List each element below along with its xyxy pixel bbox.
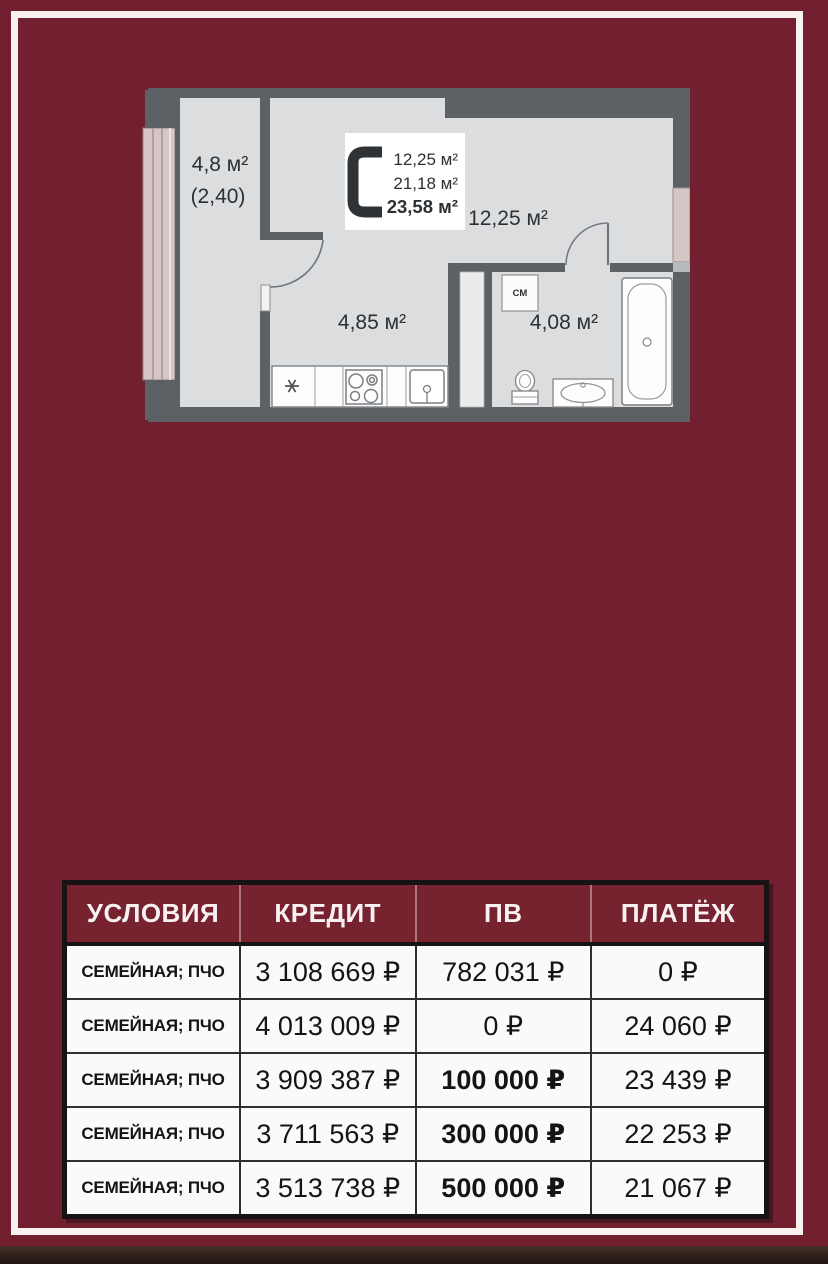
balcony-door-jamb xyxy=(261,285,270,311)
credit-cell: 4 013 009 ₽ xyxy=(240,999,416,1053)
credit-cell: 3 711 563 ₽ xyxy=(240,1107,416,1161)
conditions-cell: СЕМЕЙНАЯ; ПЧО xyxy=(65,944,241,999)
payment-cell: 0 ₽ xyxy=(591,944,767,999)
conditions-cell: СЕМЕЙНАЯ; ПЧО xyxy=(65,999,241,1053)
flyer-canvas: СМ 12,25 м² 21,18 м² 23,58 м² xyxy=(0,0,828,1264)
kitchen-area-label: 4,85 м² xyxy=(338,311,406,334)
kitchen-counter xyxy=(272,366,448,407)
bathroom-area-label: 4,08 м² xyxy=(530,311,598,334)
down-payment-cell: 0 ₽ xyxy=(416,999,592,1053)
payment-cell: 21 067 ₽ xyxy=(591,1161,767,1217)
legend-area-total: 23,58 м² xyxy=(387,196,458,217)
down-payment-cell: 300 000 ₽ xyxy=(416,1107,592,1161)
credit-cell: 3 513 738 ₽ xyxy=(240,1161,416,1217)
payment-cell: 22 253 ₽ xyxy=(591,1107,767,1161)
credit-cell: 3 909 387 ₽ xyxy=(240,1053,416,1107)
col-header-payment: ПЛАТЁЖ xyxy=(591,883,767,945)
payment-cell: 23 439 ₽ xyxy=(591,1053,767,1107)
legend-area-1: 12,25 м² xyxy=(393,150,458,169)
bathtub-icon xyxy=(622,278,672,405)
balcony-window xyxy=(143,128,175,380)
conditions-cell: СЕМЕЙНАЯ; ПЧО xyxy=(65,1107,241,1161)
washing-machine-label: СМ xyxy=(513,288,528,299)
payment-cell: 24 060 ₽ xyxy=(591,999,767,1053)
main-room-area-label: 12,25 м² xyxy=(468,207,548,230)
table-row: СЕМЕЙНАЯ; ПЧО 3 909 387 ₽ 100 000 ₽ 23 4… xyxy=(65,1053,767,1107)
table-row: СЕМЕЙНАЯ; ПЧО 4 013 009 ₽ 0 ₽ 24 060 ₽ xyxy=(65,999,767,1053)
duct-shaft xyxy=(460,272,484,407)
bottom-shadow-band xyxy=(0,1246,828,1264)
bathroom-sink-icon xyxy=(553,379,613,407)
conditions-cell: СЕМЕЙНАЯ; ПЧО xyxy=(65,1053,241,1107)
offers-table-header: УСЛОВИЯ КРЕДИТ ПВ ПЛАТЁЖ xyxy=(65,883,767,945)
down-payment-cell: 782 031 ₽ xyxy=(416,944,592,999)
credit-cell: 3 108 669 ₽ xyxy=(240,944,416,999)
table-row: СЕМЕЙНАЯ; ПЧО 3 711 563 ₽ 300 000 ₽ 22 2… xyxy=(65,1107,767,1161)
down-payment-cell: 100 000 ₽ xyxy=(416,1053,592,1107)
balcony-area-label: 4,8 м² xyxy=(192,153,248,176)
entrance-threshold xyxy=(673,262,690,272)
floor-plan: СМ 12,25 м² 21,18 м² 23,58 м² xyxy=(140,85,690,425)
legend-area-2: 21,18 м² xyxy=(393,174,458,193)
col-header-down-payment: ПВ xyxy=(416,883,592,945)
washing-machine-icon: СМ xyxy=(502,275,538,311)
table-row: СЕМЕЙНАЯ; ПЧО 3 108 669 ₽ 782 031 ₽ 0 ₽ xyxy=(65,944,767,999)
down-payment-cell: 500 000 ₽ xyxy=(416,1161,592,1217)
table-row: СЕМЕЙНАЯ; ПЧО 3 513 738 ₽ 500 000 ₽ 21 0… xyxy=(65,1161,767,1217)
col-header-credit: КРЕДИТ xyxy=(240,883,416,945)
kitchen-sink-icon xyxy=(410,370,444,403)
legend-box: 12,25 м² 21,18 м² 23,58 м² xyxy=(345,133,465,230)
conditions-cell: СЕМЕЙНАЯ; ПЧО xyxy=(65,1161,241,1217)
balcony-reduced-area-label: (2,40) xyxy=(191,185,246,208)
entrance-opening xyxy=(673,188,690,262)
offers-table: УСЛОВИЯ КРЕДИТ ПВ ПЛАТЁЖ СЕМЕЙНАЯ; ПЧО 3… xyxy=(62,880,769,1219)
offers-table-body: СЕМЕЙНАЯ; ПЧО 3 108 669 ₽ 782 031 ₽ 0 ₽ … xyxy=(65,944,767,1217)
col-header-conditions: УСЛОВИЯ xyxy=(65,883,241,945)
